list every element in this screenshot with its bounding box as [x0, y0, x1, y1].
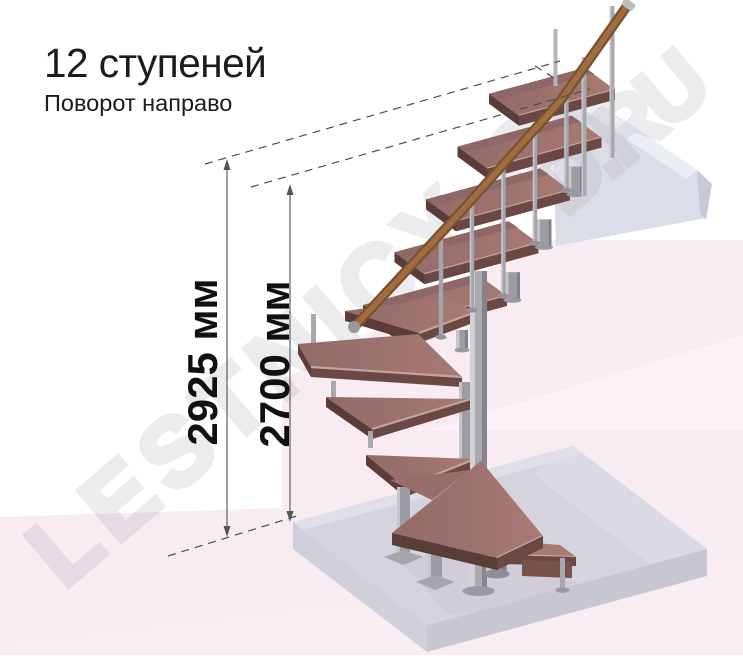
svg-text:12 ступеней: 12 ступеней	[44, 40, 266, 86]
svg-text:2925 мм: 2925 мм	[179, 278, 226, 445]
svg-text:2700 мм: 2700 мм	[251, 280, 298, 447]
svg-text:Поворот направо: Поворот направо	[44, 90, 232, 116]
